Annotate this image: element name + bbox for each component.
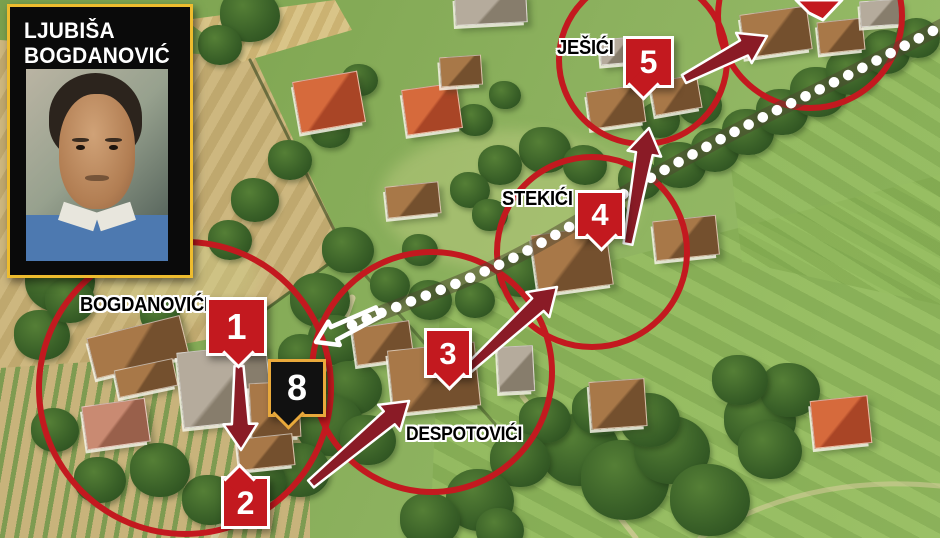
photo-mustache bbox=[85, 175, 110, 182]
pin-8: 8 bbox=[268, 359, 326, 417]
pin-2-number: 2 bbox=[237, 487, 255, 519]
pin-4-number: 4 bbox=[591, 199, 608, 230]
photo-eye bbox=[109, 145, 118, 151]
pin-1-number: 1 bbox=[226, 309, 246, 345]
pin-8-number: 8 bbox=[287, 370, 307, 406]
village-label-despotovici: DESPOTOVIĆI bbox=[406, 424, 522, 446]
portrait-name-line1: LJUBIŠA bbox=[24, 19, 170, 44]
village-label-bogdanovici: BOGDANOVIĆI bbox=[80, 294, 209, 317]
photo-brow bbox=[72, 138, 89, 143]
pin-1: 1 bbox=[206, 297, 267, 356]
portrait-name: LJUBIŠA BOGDANOVIĆ bbox=[24, 19, 170, 68]
photo-brow bbox=[105, 138, 122, 143]
pin-3-number: 3 bbox=[439, 338, 456, 369]
pin-4: 4 bbox=[575, 190, 625, 239]
portrait-card: LJUBIŠA BOGDANOVIĆ bbox=[7, 4, 193, 278]
pin-2: 2 bbox=[221, 476, 270, 529]
photo-face bbox=[59, 94, 136, 209]
portrait-name-line2: BOGDANOVIĆ bbox=[24, 44, 170, 69]
pin-5-number: 5 bbox=[640, 46, 658, 78]
pin-5: 5 bbox=[623, 36, 674, 88]
photo-eye bbox=[76, 145, 85, 151]
village-label-jesici: JEŠIĆI bbox=[557, 37, 614, 60]
pin-3: 3 bbox=[424, 328, 472, 378]
portrait-photo bbox=[26, 69, 168, 261]
village-label-stekici: STEKIĆI bbox=[502, 188, 573, 211]
aerial-map: 123458 BOGDANOVIĆIDESPOTOVIĆISTEKIĆIJEŠI… bbox=[0, 0, 940, 538]
